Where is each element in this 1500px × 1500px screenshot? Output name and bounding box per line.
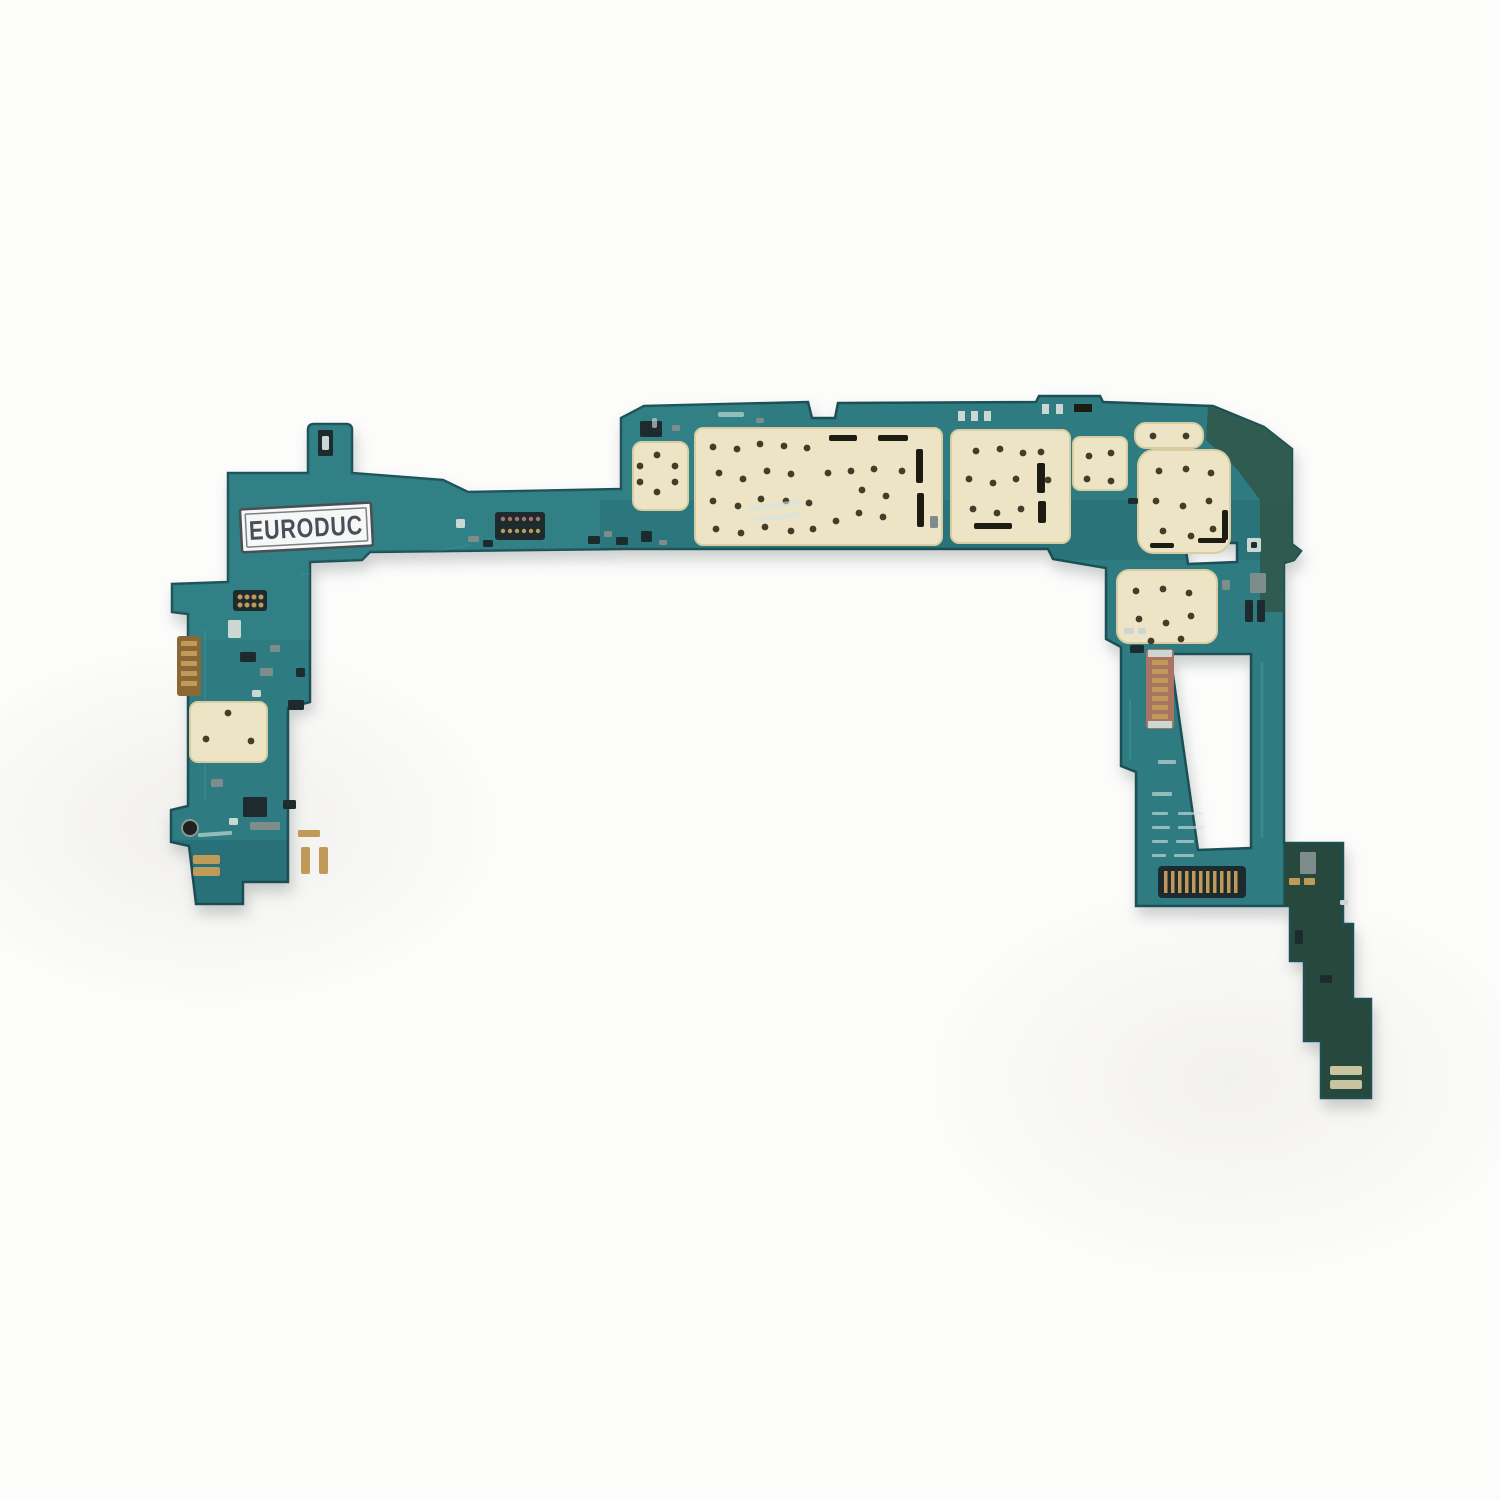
via-dot bbox=[810, 526, 817, 533]
emi-shield-pad bbox=[1135, 423, 1203, 448]
connector-pin bbox=[1171, 871, 1175, 893]
connector-pin bbox=[536, 529, 540, 533]
via-dot bbox=[788, 471, 795, 478]
smd-component bbox=[1251, 542, 1257, 548]
smd-component bbox=[240, 652, 256, 662]
via-dot bbox=[848, 468, 855, 475]
via-dot bbox=[1156, 468, 1163, 475]
connector-pin bbox=[259, 595, 264, 600]
pcb-illustration: EURODUC bbox=[0, 0, 1500, 1500]
via-dot bbox=[1133, 588, 1140, 595]
smd-component bbox=[211, 779, 223, 787]
connector-pin bbox=[181, 641, 197, 646]
pad-slot bbox=[829, 435, 857, 441]
via-dot bbox=[764, 468, 771, 475]
via-dot bbox=[1018, 506, 1025, 513]
via-dot bbox=[1210, 526, 1217, 533]
via-dot bbox=[713, 526, 720, 533]
smd-component bbox=[250, 822, 280, 830]
smd-component bbox=[260, 668, 273, 676]
via-dot bbox=[735, 503, 742, 510]
smd-component bbox=[588, 536, 600, 544]
emi-shield-pad bbox=[1073, 437, 1127, 490]
via-dot bbox=[871, 466, 878, 473]
via-dot bbox=[734, 446, 741, 453]
via-dot bbox=[1188, 533, 1195, 540]
silk-mark bbox=[1176, 840, 1194, 843]
edge-pad bbox=[971, 411, 978, 421]
via-dot bbox=[1163, 620, 1170, 627]
via-dot bbox=[1208, 470, 1215, 477]
silk-mark bbox=[652, 418, 657, 428]
via-dot bbox=[1150, 433, 1157, 440]
connector-pin bbox=[536, 517, 540, 521]
smd-component bbox=[756, 418, 764, 423]
via-dot bbox=[788, 528, 795, 535]
connector-pin bbox=[1199, 871, 1203, 893]
smd-component bbox=[1250, 573, 1266, 593]
via-dot bbox=[899, 468, 906, 475]
connector-pin bbox=[1152, 660, 1168, 665]
tail-pad bbox=[1289, 878, 1300, 885]
connector-pin bbox=[1152, 705, 1168, 710]
connector-pin bbox=[1227, 871, 1231, 893]
smd-component bbox=[1257, 600, 1265, 622]
smd-component bbox=[1300, 852, 1316, 874]
via-dot bbox=[637, 479, 644, 486]
board-to-board-connector-left bbox=[177, 636, 201, 696]
smd-component bbox=[640, 421, 662, 437]
connector-pin bbox=[181, 661, 197, 666]
via-dot bbox=[806, 500, 813, 507]
gold-contact-pad bbox=[193, 867, 220, 876]
connector-pin bbox=[515, 529, 519, 533]
connector-cap bbox=[1148, 650, 1172, 657]
via-dot bbox=[966, 476, 973, 483]
via-dot bbox=[637, 463, 644, 470]
silk-mark bbox=[1178, 812, 1202, 815]
via-dot bbox=[856, 510, 863, 517]
emi-shield-pad bbox=[633, 442, 688, 510]
gold-contact-pad bbox=[319, 847, 328, 874]
board-to-board-connector-right bbox=[1146, 649, 1174, 729]
seller-sticker: EURODUC bbox=[240, 503, 373, 553]
via-dot bbox=[672, 463, 679, 470]
smd-component bbox=[298, 830, 320, 837]
connector-pin bbox=[1185, 871, 1189, 893]
via-dot bbox=[1153, 498, 1160, 505]
edge-pad bbox=[984, 411, 991, 421]
smd-component bbox=[456, 519, 465, 528]
silk-mark bbox=[1152, 826, 1170, 829]
smd-component bbox=[659, 540, 667, 545]
gold-contact-pad bbox=[193, 855, 220, 864]
pad-slot bbox=[1150, 543, 1174, 548]
connector-pin bbox=[252, 595, 257, 600]
silk-mark bbox=[1152, 840, 1168, 843]
connector-pin bbox=[181, 651, 197, 656]
connector-pin bbox=[501, 529, 505, 533]
pad-slot bbox=[1198, 538, 1226, 543]
connector-pin bbox=[1206, 871, 1210, 893]
smd-component bbox=[243, 797, 267, 817]
smd-component bbox=[468, 536, 479, 542]
connector-pin bbox=[181, 681, 197, 686]
via-dot bbox=[710, 444, 717, 451]
smd-component bbox=[296, 668, 305, 677]
via-dot bbox=[654, 452, 661, 459]
silk-mark bbox=[1152, 854, 1166, 857]
via-dot bbox=[880, 514, 887, 521]
smd-component bbox=[322, 436, 329, 450]
connector-pin bbox=[1152, 669, 1168, 674]
connector-pin bbox=[1164, 871, 1168, 893]
via-dot bbox=[1108, 450, 1115, 457]
board-to-board-connector-bottom bbox=[1158, 866, 1246, 898]
via-dot bbox=[203, 736, 210, 743]
connector-pin bbox=[508, 517, 512, 521]
via-dot bbox=[804, 445, 811, 452]
smd-component bbox=[283, 800, 296, 809]
via-dot bbox=[1045, 477, 1052, 484]
pad-slot bbox=[1222, 510, 1228, 540]
smd-component bbox=[1124, 628, 1134, 634]
smd-component bbox=[1128, 498, 1138, 504]
via-dot bbox=[1186, 590, 1193, 597]
via-dot bbox=[1180, 503, 1187, 510]
smd-component bbox=[288, 700, 304, 710]
smd-component bbox=[1320, 975, 1332, 983]
via-dot bbox=[990, 480, 997, 487]
connector-cap bbox=[1148, 721, 1172, 728]
smd-component bbox=[1245, 600, 1253, 622]
edge-pad bbox=[1056, 404, 1063, 414]
via-dot bbox=[1084, 476, 1091, 483]
silk-mark bbox=[718, 412, 744, 417]
connector-pin bbox=[522, 529, 526, 533]
via-dot bbox=[970, 506, 977, 513]
connector-pin bbox=[529, 529, 533, 533]
via-dot bbox=[1108, 478, 1115, 485]
connector-body bbox=[495, 512, 545, 540]
smd-component bbox=[1340, 900, 1348, 905]
sticker-text: EURODUC bbox=[248, 510, 363, 546]
silk-mark bbox=[1152, 792, 1172, 796]
connector-pin bbox=[1234, 871, 1238, 893]
via-dot bbox=[973, 448, 980, 455]
tail-pad bbox=[1330, 1080, 1362, 1089]
smd-component bbox=[270, 645, 280, 652]
smd-component bbox=[1222, 580, 1230, 590]
connector-pin bbox=[529, 517, 533, 521]
tail-pad bbox=[1304, 878, 1315, 885]
via-dot bbox=[1013, 476, 1020, 483]
connector-pin bbox=[238, 603, 243, 608]
pad-slot bbox=[878, 435, 908, 441]
tail-junction-dark bbox=[1284, 798, 1343, 843]
via-dot bbox=[716, 470, 723, 477]
connector-pin bbox=[252, 603, 257, 608]
edge-pad bbox=[1042, 404, 1049, 414]
board-shade-left bbox=[160, 840, 360, 920]
smd-component bbox=[483, 540, 493, 547]
connector-pin bbox=[1152, 696, 1168, 701]
connector-pin bbox=[1152, 678, 1168, 683]
pad-slot bbox=[916, 449, 923, 483]
via-dot bbox=[248, 738, 255, 745]
silk-mark bbox=[1174, 854, 1194, 857]
connector-pin bbox=[181, 671, 197, 676]
edge-slot bbox=[1074, 404, 1092, 412]
edge-pad bbox=[958, 411, 965, 421]
pad-slot bbox=[1037, 463, 1045, 493]
via-dot bbox=[1183, 466, 1190, 473]
emi-shield-pad bbox=[1138, 450, 1230, 553]
via-dot bbox=[1160, 528, 1167, 535]
emi-shield-pad bbox=[695, 428, 942, 545]
smd-component bbox=[1138, 628, 1146, 634]
smd-component bbox=[672, 425, 680, 431]
smd-component bbox=[641, 531, 652, 542]
connector-pin bbox=[245, 603, 250, 608]
via-dot bbox=[1160, 586, 1167, 593]
via-dot bbox=[883, 493, 890, 500]
smd-component bbox=[1130, 645, 1144, 653]
connector-pin bbox=[508, 529, 512, 533]
via-dot bbox=[825, 470, 832, 477]
microphone-hole bbox=[182, 820, 198, 836]
via-dot bbox=[225, 710, 232, 717]
connector-pin bbox=[1178, 871, 1182, 893]
connector-pin bbox=[259, 603, 264, 608]
smd-component bbox=[252, 690, 261, 697]
smd-component bbox=[930, 516, 938, 528]
silk-mark bbox=[1152, 812, 1168, 815]
connector-pin bbox=[522, 517, 526, 521]
board-to-board-connector-strip bbox=[495, 512, 545, 540]
gold-contact-pad bbox=[301, 847, 310, 874]
connector-pin bbox=[515, 517, 519, 521]
via-dot bbox=[740, 476, 747, 483]
smd-component bbox=[229, 818, 238, 825]
motherboard-photo: EURODUC bbox=[0, 0, 1500, 1500]
via-dot bbox=[1020, 450, 1027, 457]
via-dot bbox=[1206, 498, 1213, 505]
via-dot bbox=[1188, 613, 1195, 620]
via-dot bbox=[672, 479, 679, 486]
connector-pin bbox=[245, 595, 250, 600]
connector-pin bbox=[1152, 687, 1168, 692]
smd-component bbox=[1295, 930, 1303, 944]
via-dot bbox=[1178, 636, 1185, 643]
connector-pin bbox=[1192, 871, 1196, 893]
connector-pin bbox=[501, 517, 505, 521]
gold-pad-component bbox=[233, 590, 267, 611]
via-dot bbox=[1136, 616, 1143, 623]
connector-pin bbox=[238, 595, 243, 600]
smd-component bbox=[616, 537, 628, 545]
via-dot bbox=[757, 441, 764, 448]
silk-mark bbox=[1178, 826, 1204, 829]
silk-mark bbox=[1158, 760, 1176, 764]
via-dot bbox=[738, 530, 745, 537]
via-dot bbox=[758, 496, 765, 503]
smd-component bbox=[604, 531, 612, 537]
connector-pin bbox=[1152, 714, 1168, 719]
smd-component bbox=[228, 620, 241, 638]
via-dot bbox=[994, 510, 1001, 517]
via-dot bbox=[710, 498, 717, 505]
pad-slot bbox=[1038, 501, 1046, 523]
via-dot bbox=[762, 524, 769, 531]
via-dot bbox=[781, 443, 788, 450]
via-dot bbox=[654, 489, 661, 496]
via-dot bbox=[1148, 638, 1155, 645]
tail-pad bbox=[1330, 1066, 1362, 1075]
connector-pin bbox=[1213, 871, 1217, 893]
via-dot bbox=[1038, 449, 1045, 456]
pad-slot bbox=[917, 493, 924, 527]
connector-body bbox=[233, 590, 267, 611]
via-dot bbox=[833, 518, 840, 525]
connector-pin bbox=[1220, 871, 1224, 893]
via-dot bbox=[1086, 453, 1093, 460]
pad-slot bbox=[974, 523, 1012, 529]
via-dot bbox=[1183, 433, 1190, 440]
via-dot bbox=[997, 446, 1004, 453]
via-dot bbox=[859, 487, 866, 494]
